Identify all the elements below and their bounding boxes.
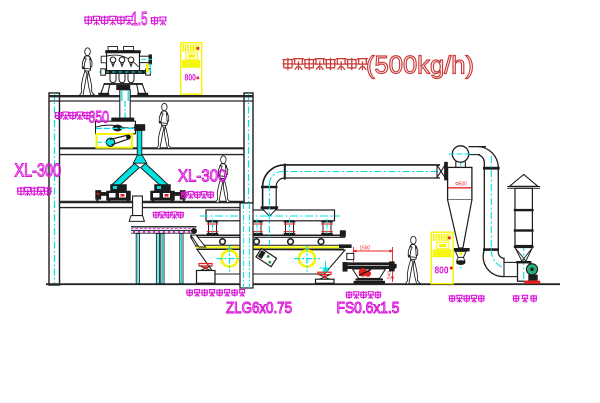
svg-text:(500kg/h): (500kg/h) (366, 52, 474, 80)
svg-text:1.5: 1.5 (132, 8, 148, 29)
svg-text:1500: 1500 (360, 245, 371, 251)
svg-text:ZLG6x0.75: ZLG6x0.75 (226, 300, 292, 317)
svg-text:FS0.6x1.5: FS0.6x1.5 (337, 300, 400, 317)
svg-text:Φ500: Φ500 (455, 182, 467, 188)
svg-text:800: 800 (185, 73, 197, 84)
svg-text:540: 540 (386, 271, 392, 279)
svg-text:XL-300: XL-300 (15, 161, 62, 181)
svg-text:350: 350 (89, 108, 110, 127)
svg-text:XL-300: XL-300 (178, 166, 227, 186)
svg-text:800: 800 (435, 265, 449, 277)
